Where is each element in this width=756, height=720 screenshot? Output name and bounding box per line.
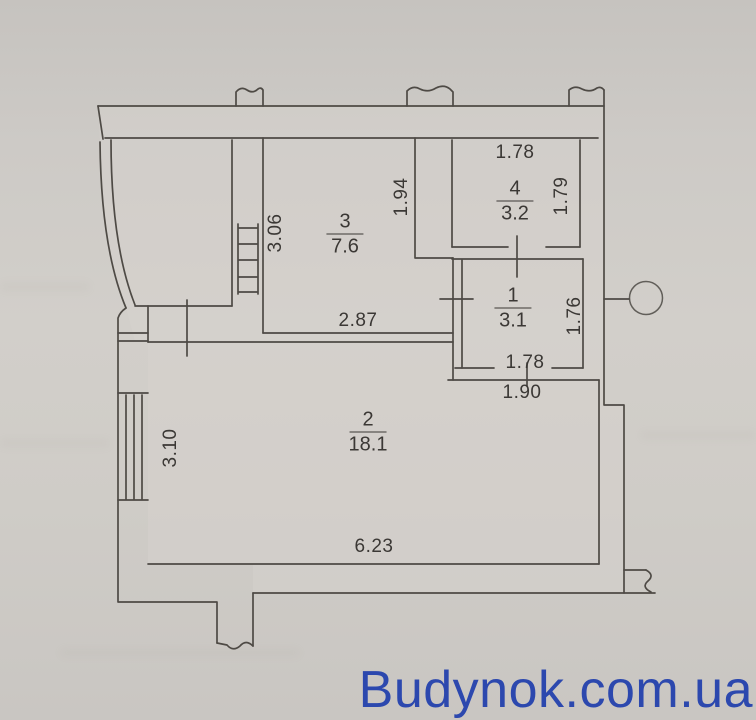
dimension-label: 2.87 — [339, 310, 378, 332]
room-area: 7.6 — [326, 235, 363, 257]
dimension-label: 1.90 — [503, 382, 542, 404]
room-number: 3 — [326, 212, 363, 235]
room-area: 3.1 — [494, 309, 531, 331]
dimension-label: 1.76 — [564, 297, 586, 336]
window-symbol — [118, 393, 148, 500]
dimension-label: 3.06 — [265, 214, 287, 253]
room-label-3: 37.6 — [326, 212, 363, 257]
room-label-2: 218.1 — [349, 410, 388, 455]
entrance-door-circle — [630, 282, 663, 315]
dimension-label: 1.79 — [551, 177, 573, 216]
break-squiggle — [217, 643, 253, 649]
room-number: 1 — [494, 286, 531, 309]
floor-plan-drawing — [0, 0, 756, 720]
dimension-label: 1.78 — [506, 352, 545, 374]
dimension-label: 1.78 — [496, 142, 535, 164]
dimension-label: 6.23 — [355, 536, 394, 558]
room-number: 2 — [349, 410, 386, 433]
room-label-1: 13.1 — [494, 286, 531, 331]
room-label-4: 43.2 — [496, 179, 533, 224]
chimney-bump — [407, 86, 453, 106]
room-area: 18.1 — [349, 433, 388, 455]
room-area: 3.2 — [496, 202, 533, 224]
dimension-label: 3.10 — [160, 429, 182, 468]
dimension-label: 1.94 — [391, 178, 413, 217]
chimney-bump — [236, 88, 263, 106]
watermark-text: Budynok.com.ua — [359, 664, 753, 720]
room-number: 4 — [496, 179, 533, 202]
chimney-bump — [569, 87, 604, 106]
floor-plan-photo: 37.643.213.1218.11.781.791.943.062.871.7… — [0, 0, 756, 720]
flat-interior — [98, 106, 624, 592]
break-squiggle — [645, 570, 651, 592]
